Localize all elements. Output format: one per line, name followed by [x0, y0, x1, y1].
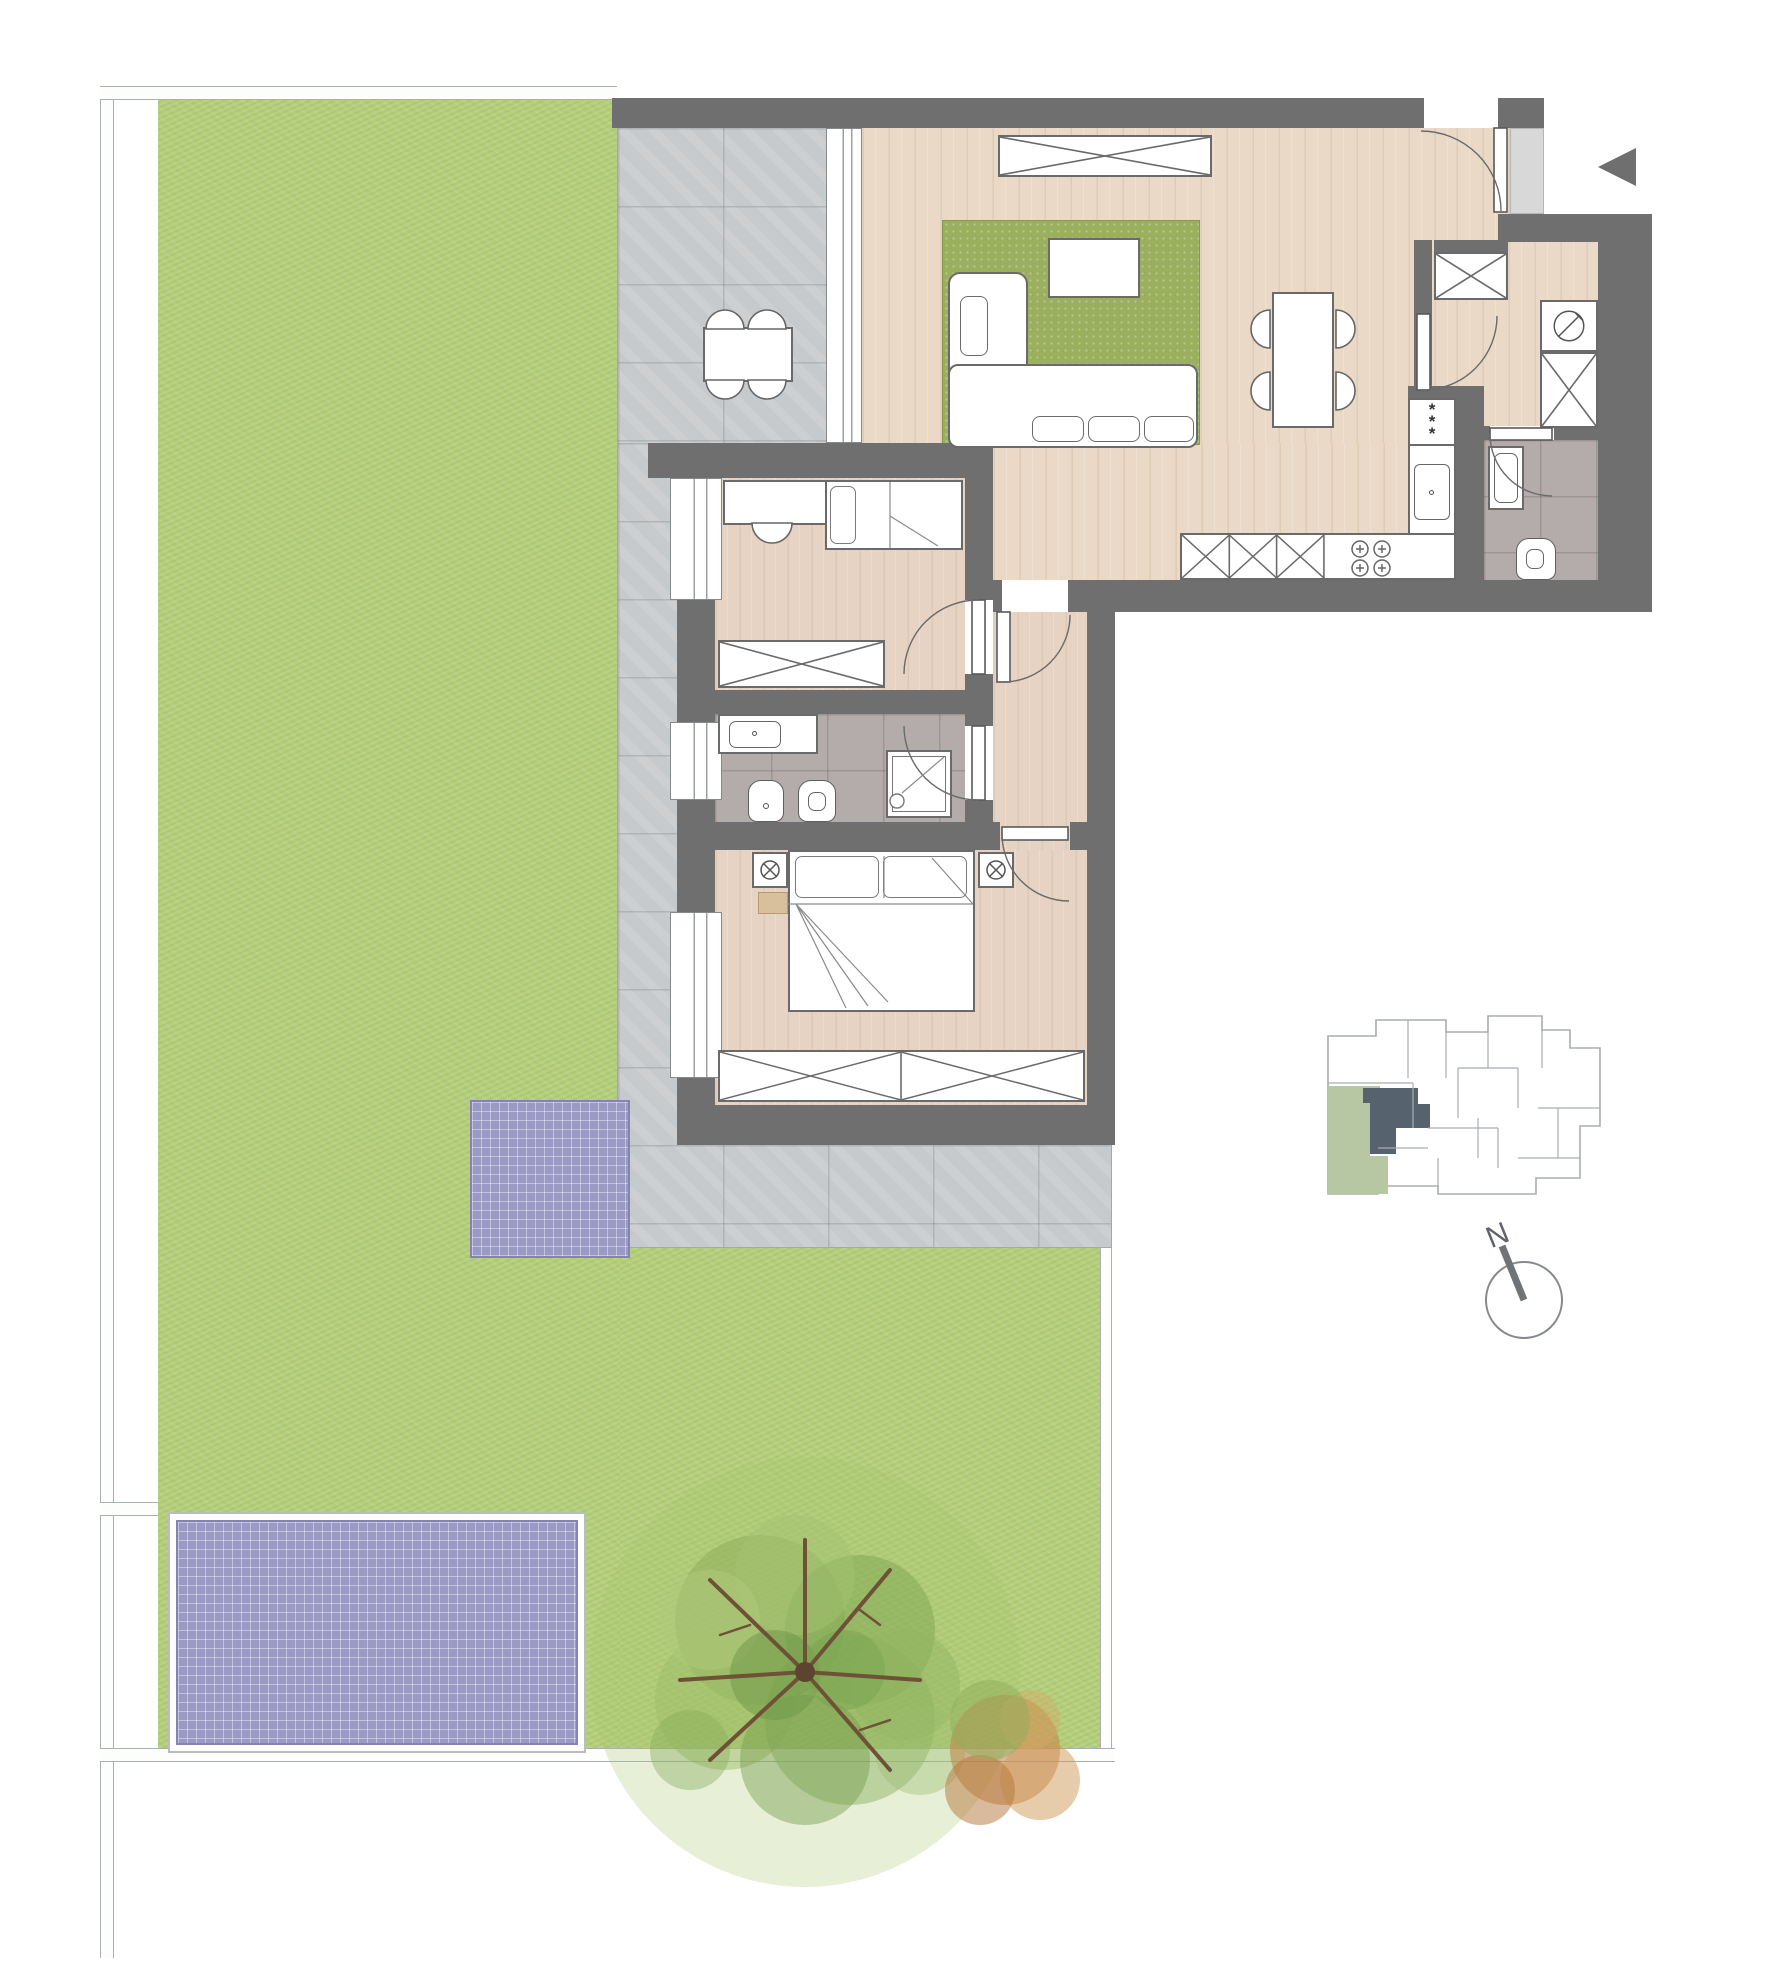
door-leaves [972, 128, 1552, 840]
shower-drain-icon [890, 794, 904, 808]
tree-trunk [795, 1662, 815, 1682]
door-arcs [904, 131, 1552, 901]
shrub [945, 1680, 1080, 1825]
tree [560, 1420, 1100, 1962]
terrace-chairs [706, 310, 792, 543]
floor-plan-canvas: * * * [0, 0, 1770, 1962]
sketch-lines [788, 482, 973, 1008]
desk-chair [752, 523, 792, 543]
north-compass [1460, 1212, 1590, 1372]
key-plan [1318, 1008, 1608, 1213]
bedside-lamp-icons [761, 861, 1005, 879]
dining-chairs [1251, 310, 1355, 410]
